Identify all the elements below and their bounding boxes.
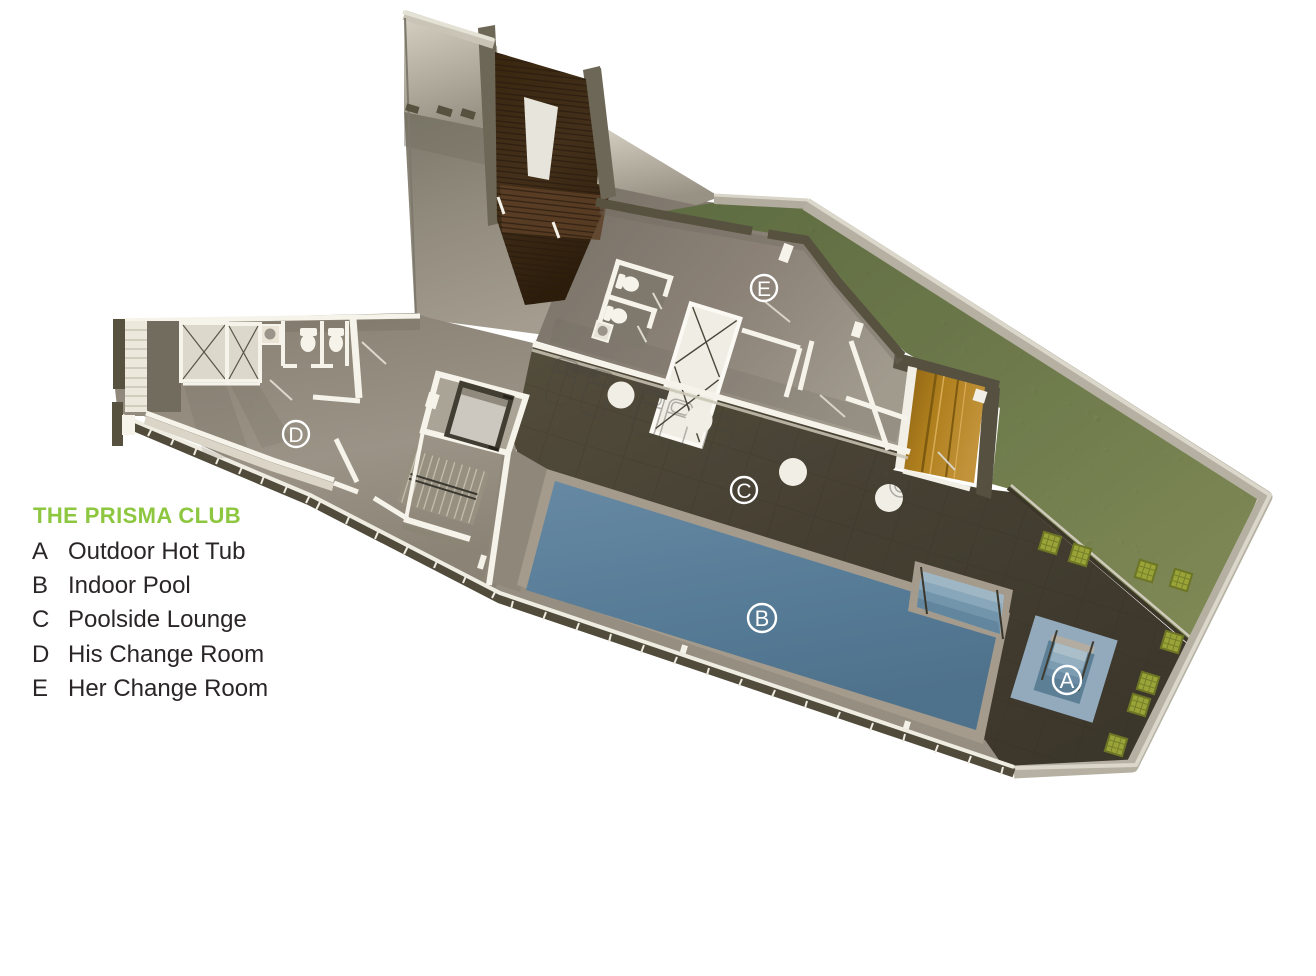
svg-text:C: C xyxy=(32,606,49,633)
svg-text:Indoor Pool: Indoor Pool xyxy=(68,572,191,599)
svg-text:E: E xyxy=(757,278,771,301)
svg-text:A: A xyxy=(32,538,48,565)
svg-text:His Change Room: His Change Room xyxy=(68,641,264,668)
svg-text:C: C xyxy=(736,480,751,503)
svg-text:B: B xyxy=(755,606,770,631)
svg-text:Her Change Room: Her Change Room xyxy=(68,675,268,702)
svg-text:D: D xyxy=(288,424,303,447)
svg-text:A: A xyxy=(1060,668,1075,693)
svg-text:B: B xyxy=(32,572,48,599)
svg-text:Outdoor Hot Tub: Outdoor Hot Tub xyxy=(68,538,245,565)
svg-text:E: E xyxy=(32,675,48,702)
svg-text:Poolside Lounge: Poolside Lounge xyxy=(68,606,247,633)
svg-text:THE PRISMA CLUB: THE PRISMA CLUB xyxy=(33,503,241,528)
svg-text:D: D xyxy=(32,641,49,668)
